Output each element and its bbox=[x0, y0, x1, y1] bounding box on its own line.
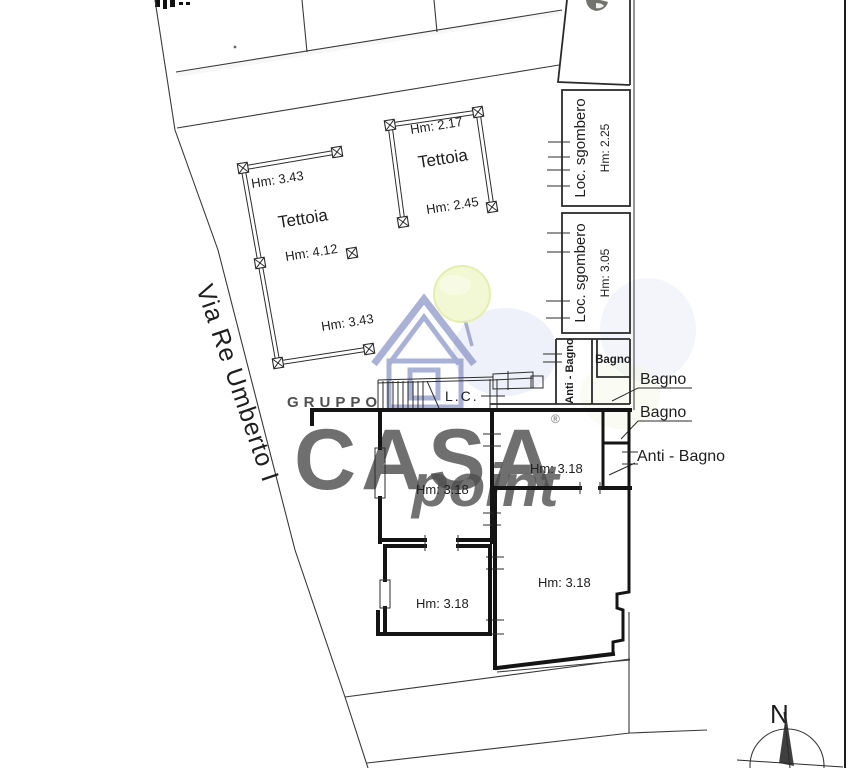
post-icon bbox=[472, 106, 483, 117]
rear-parcel-line bbox=[345, 659, 630, 697]
storage-room-1-height: Hm: 2.25 bbox=[598, 123, 612, 172]
room-b-height: Hm: 3.18 bbox=[530, 461, 583, 476]
tettoia-small-height-bottom: Hm: 2.45 bbox=[425, 194, 479, 217]
watermark-registered-icon: ® bbox=[551, 412, 560, 426]
parcel-line-lower bbox=[177, 65, 559, 128]
tettoia-large: Hm: 3.43 Tettoia Hm: 4.12 Hm: 3.43 bbox=[237, 146, 374, 368]
room-d-height: Hm: 3.18 bbox=[416, 596, 469, 611]
street-label: Via Re Umberto I bbox=[190, 281, 284, 486]
tettoia-large-label: Tettoia bbox=[277, 205, 330, 232]
tettoia-large-height-bottom: Hm: 3.43 bbox=[320, 311, 374, 334]
room-c-bottom-wall bbox=[497, 654, 613, 668]
rear-street-line bbox=[367, 730, 707, 763]
callout-bagno-upper: Bagno bbox=[640, 371, 686, 388]
clipped-text-fragment bbox=[155, 0, 190, 9]
parcel-divider-1 bbox=[302, 0, 307, 52]
storage-room-1-label: Loc. sgombero bbox=[572, 98, 589, 197]
window-ticks bbox=[546, 233, 570, 318]
parcel-line-upper bbox=[176, 10, 562, 72]
room-a-height: Hm: 3.18 bbox=[416, 482, 469, 497]
floor-plan: GRUPPO CASA ® point Via Re Umberto I bbox=[0, 0, 855, 768]
post-icon bbox=[254, 257, 265, 268]
anti-bagno-room-label: Anti - Bagno bbox=[564, 338, 576, 404]
lane-band bbox=[176, 10, 562, 77]
tettoia-large-height-mid: Hm: 4.12 bbox=[284, 241, 338, 264]
room-c-right-wall bbox=[613, 488, 629, 652]
scan-dot bbox=[234, 46, 237, 49]
bagno-room-label: Bagno bbox=[595, 354, 631, 366]
callout-anti-bagno: Anti - Bagno bbox=[637, 448, 725, 465]
storage-room-2-height: Hm: 3.05 bbox=[598, 248, 612, 297]
post-icon bbox=[486, 201, 497, 212]
top-room bbox=[558, 0, 630, 85]
callout-bagno-lower: Bagno bbox=[640, 404, 686, 421]
post-icon bbox=[384, 119, 395, 130]
window bbox=[380, 580, 390, 608]
stairwell-label: L.C. bbox=[445, 388, 479, 404]
north-compass: N bbox=[737, 699, 843, 768]
scanned-floor-plan-page: GRUPPO CASA ® point Via Re Umberto I bbox=[0, 0, 855, 768]
post-icon bbox=[331, 146, 342, 157]
street-boundary-line bbox=[155, 0, 368, 768]
room-d-bottom-wall bbox=[378, 612, 490, 634]
scan-smudge bbox=[586, 0, 608, 11]
post-icon bbox=[346, 247, 357, 258]
room-c-height: Hm: 3.18 bbox=[538, 575, 591, 590]
post-icon bbox=[237, 162, 248, 173]
post-icon bbox=[272, 357, 283, 368]
tettoia-small: Hm: 2.17 Tettoia Hm: 2.45 bbox=[384, 106, 497, 227]
tettoia-small-label: Tettoia bbox=[417, 145, 470, 172]
tettoia-small-height-top: Hm: 2.17 bbox=[409, 114, 463, 137]
leaf-ball-icon bbox=[434, 266, 490, 322]
storage-room-2-label: Loc. sgombero bbox=[572, 223, 589, 322]
post-icon bbox=[397, 216, 408, 227]
tettoia-large-height-top: Hm: 3.43 bbox=[250, 168, 304, 191]
window-ticks bbox=[547, 142, 570, 186]
post-icon bbox=[363, 343, 374, 354]
parcel-divider-2 bbox=[434, 0, 437, 32]
